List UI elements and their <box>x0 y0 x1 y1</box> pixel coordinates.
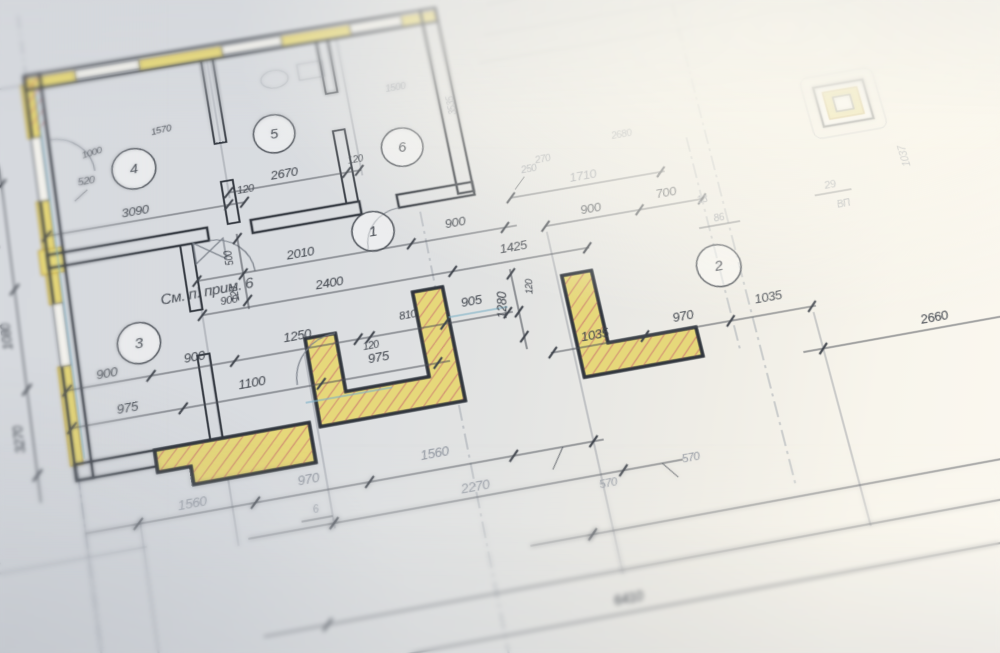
plan-svg: См. п. прим. 6 123456 309012026701205201… <box>0 0 1000 653</box>
dimension-label: 570 <box>598 476 619 492</box>
dimension-label: 3270 <box>0 223 3 251</box>
dimension-label: 86 <box>713 212 727 224</box>
faded-upper-structures <box>441 0 1000 63</box>
dimension-label: 900 <box>95 365 118 383</box>
dimension-label: 1500 <box>385 81 408 94</box>
dimension-label: 900 <box>183 348 206 366</box>
dimension-label: 700 <box>654 184 678 201</box>
dimension-label: 1100 <box>237 373 267 392</box>
dimension-label: 900 <box>444 214 467 231</box>
dimension-label: 2670 <box>269 165 300 183</box>
plan-note: См. п. прим. 6 <box>159 275 256 309</box>
dimension-label: 975 <box>367 348 392 366</box>
dimension-label: 500 <box>223 249 237 266</box>
dimension-label: 1560 <box>177 493 208 513</box>
dimension-label: 970 <box>671 307 695 325</box>
dimension-label: 1570 <box>150 123 173 138</box>
chimney <box>799 67 888 139</box>
dimension-label: 1280 <box>494 292 509 319</box>
dimension-label: 3535 <box>445 94 460 115</box>
dimension-label: 2270 <box>459 477 492 497</box>
dimension-label: 970 <box>296 470 320 489</box>
dimension-label: 2010 <box>285 244 316 262</box>
dimension-label: 1080 <box>0 322 16 351</box>
dimension-label: 905 <box>460 292 485 310</box>
dimension-label: 13 <box>696 194 710 206</box>
dimension-label: 1710 <box>568 167 598 185</box>
dimension-label: 3090 <box>121 202 150 220</box>
dimension-label: 975 <box>116 399 141 417</box>
dimension-label: 120 <box>236 183 255 197</box>
dimension-label: 900 <box>219 293 239 308</box>
dimension-label: 29 <box>822 178 838 191</box>
dimension-label: 6410 <box>612 588 644 609</box>
dimension-label: 120 <box>524 278 536 294</box>
floorplan-scene: См. п. прим. 6 123456 309012026701205201… <box>0 0 1000 653</box>
dimension-label: 270 <box>533 153 552 166</box>
dimension-label: 520 <box>77 174 96 188</box>
walls-group <box>24 8 518 481</box>
dimension-label: 120 <box>347 154 365 167</box>
dimension-label: 810 <box>398 308 418 323</box>
dimension-label: 1035 <box>753 288 785 307</box>
dimension-label: 2680 <box>609 128 633 142</box>
dimension-label: 2400 <box>313 274 344 293</box>
dimension-label: 900 <box>579 200 602 217</box>
blueprint-photo: См. п. прим. 6 123456 309012026701205201… <box>0 0 1000 653</box>
dimension-label: 1425 <box>498 238 529 256</box>
dimension-label: 570 <box>681 450 702 466</box>
dimension-label: 6 <box>312 504 320 517</box>
dimension-label: 1560 <box>419 444 450 464</box>
dimension-label: 3270 <box>10 424 28 454</box>
dimension-label: 1000 <box>81 145 105 161</box>
dimension-label: ВП <box>836 198 853 211</box>
stair-wall <box>956 0 1000 231</box>
dimension-label: 1037 <box>895 143 913 167</box>
dimension-label: 2660 <box>918 308 950 327</box>
